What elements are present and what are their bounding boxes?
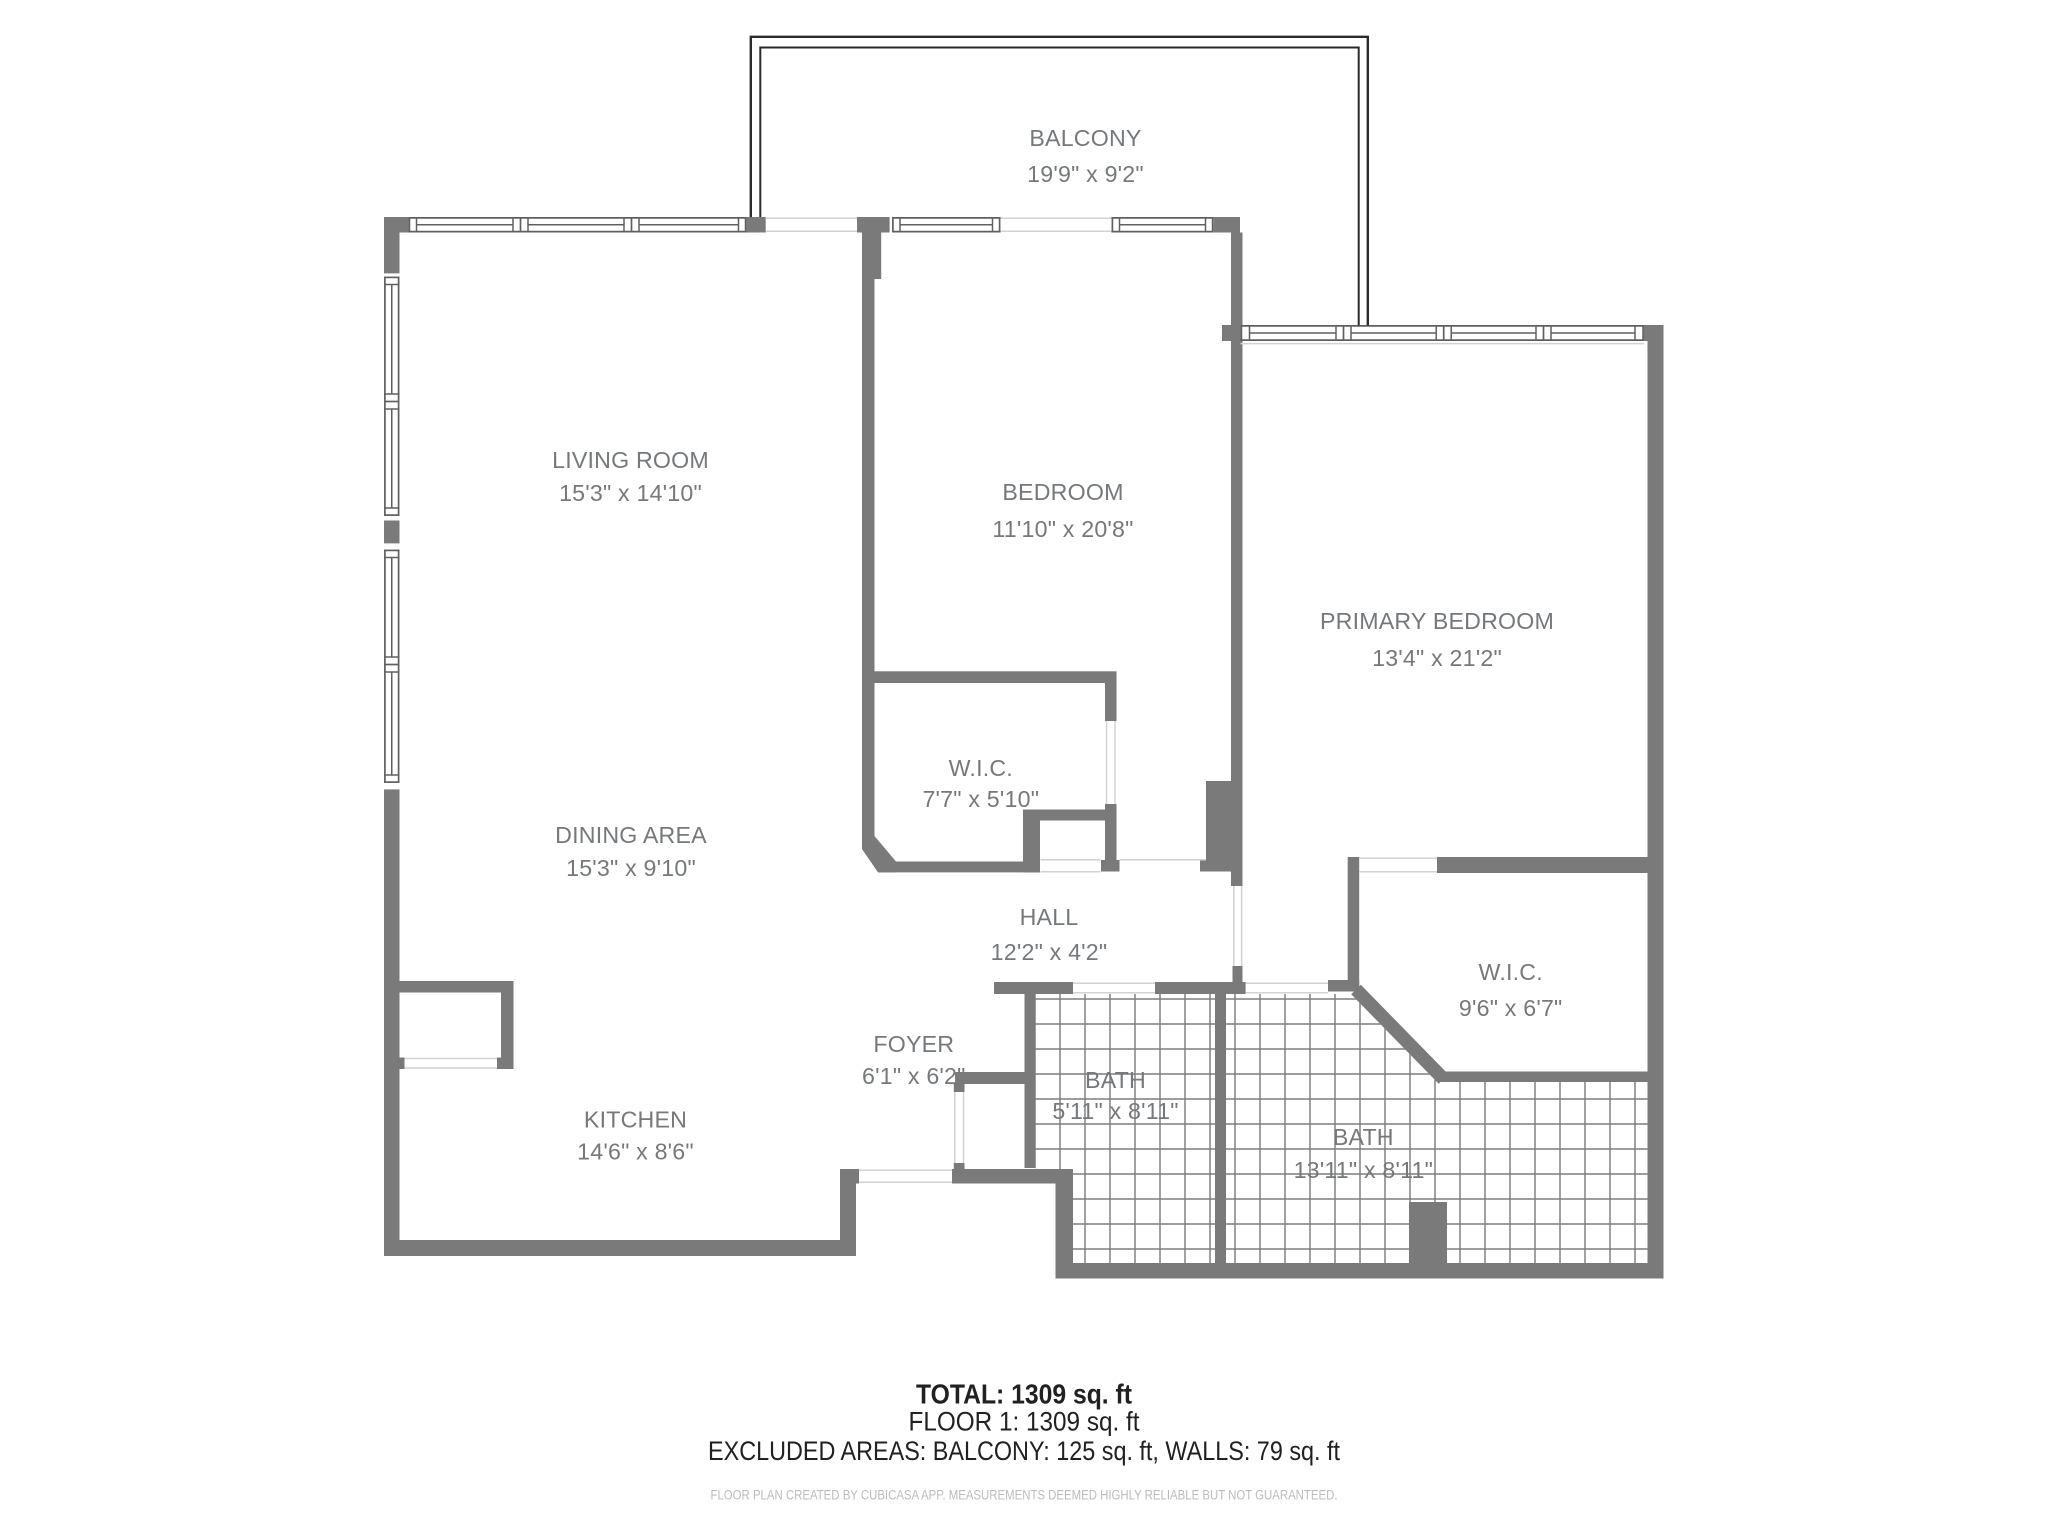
svg-text:6'1" x 6'2": 6'1" x 6'2" [862, 1063, 966, 1089]
svg-text:7'7" x 5'10": 7'7" x 5'10" [922, 786, 1039, 812]
svg-text:FLOOR PLAN CREATED BY CUBICASA: FLOOR PLAN CREATED BY CUBICASA APP. MEAS… [711, 1488, 1338, 1503]
svg-text:TOTAL: 1309 sq. ft: TOTAL: 1309 sq. ft [916, 1379, 1132, 1410]
svg-text:DINING AREA: DINING AREA [555, 822, 707, 848]
svg-text:11'10" x 20'8": 11'10" x 20'8" [992, 516, 1133, 542]
svg-text:9'6" x 6'7": 9'6" x 6'7" [1459, 995, 1563, 1021]
svg-text:13'4" x 21'2": 13'4" x 21'2" [1372, 645, 1502, 671]
svg-text:BALCONY: BALCONY [1029, 125, 1141, 151]
svg-text:W.I.C.: W.I.C. [949, 755, 1013, 781]
svg-text:BATH: BATH [1333, 1124, 1394, 1150]
svg-text:W.I.C.: W.I.C. [1479, 959, 1543, 985]
svg-text:BEDROOM: BEDROOM [1002, 479, 1123, 505]
svg-text:5'11" x 8'11": 5'11" x 8'11" [1052, 1098, 1178, 1124]
svg-text:12'2" x 4'2": 12'2" x 4'2" [991, 939, 1108, 965]
svg-text:EXCLUDED AREAS: BALCONY: 125 s: EXCLUDED AREAS: BALCONY: 125 sq. ft, WAL… [708, 1436, 1340, 1466]
svg-text:FOYER: FOYER [873, 1031, 954, 1057]
svg-text:PRIMARY BEDROOM: PRIMARY BEDROOM [1320, 608, 1554, 634]
svg-text:HALL: HALL [1020, 904, 1079, 930]
svg-text:FLOOR 1: 1309 sq. ft: FLOOR 1: 1309 sq. ft [909, 1407, 1140, 1437]
svg-text:KITCHEN: KITCHEN [584, 1107, 687, 1133]
svg-text:13'11" x 8'11": 13'11" x 8'11" [1294, 1157, 1433, 1183]
svg-text:14'6" x 8'6": 14'6" x 8'6" [577, 1139, 694, 1165]
svg-text:BATH: BATH [1085, 1067, 1146, 1093]
svg-text:15'3" x 14'10": 15'3" x 14'10" [559, 480, 702, 506]
svg-text:19'9" x 9'2": 19'9" x 9'2" [1027, 161, 1144, 187]
svg-text:LIVING ROOM: LIVING ROOM [552, 447, 709, 473]
svg-text:15'3" x 9'10": 15'3" x 9'10" [566, 855, 696, 881]
